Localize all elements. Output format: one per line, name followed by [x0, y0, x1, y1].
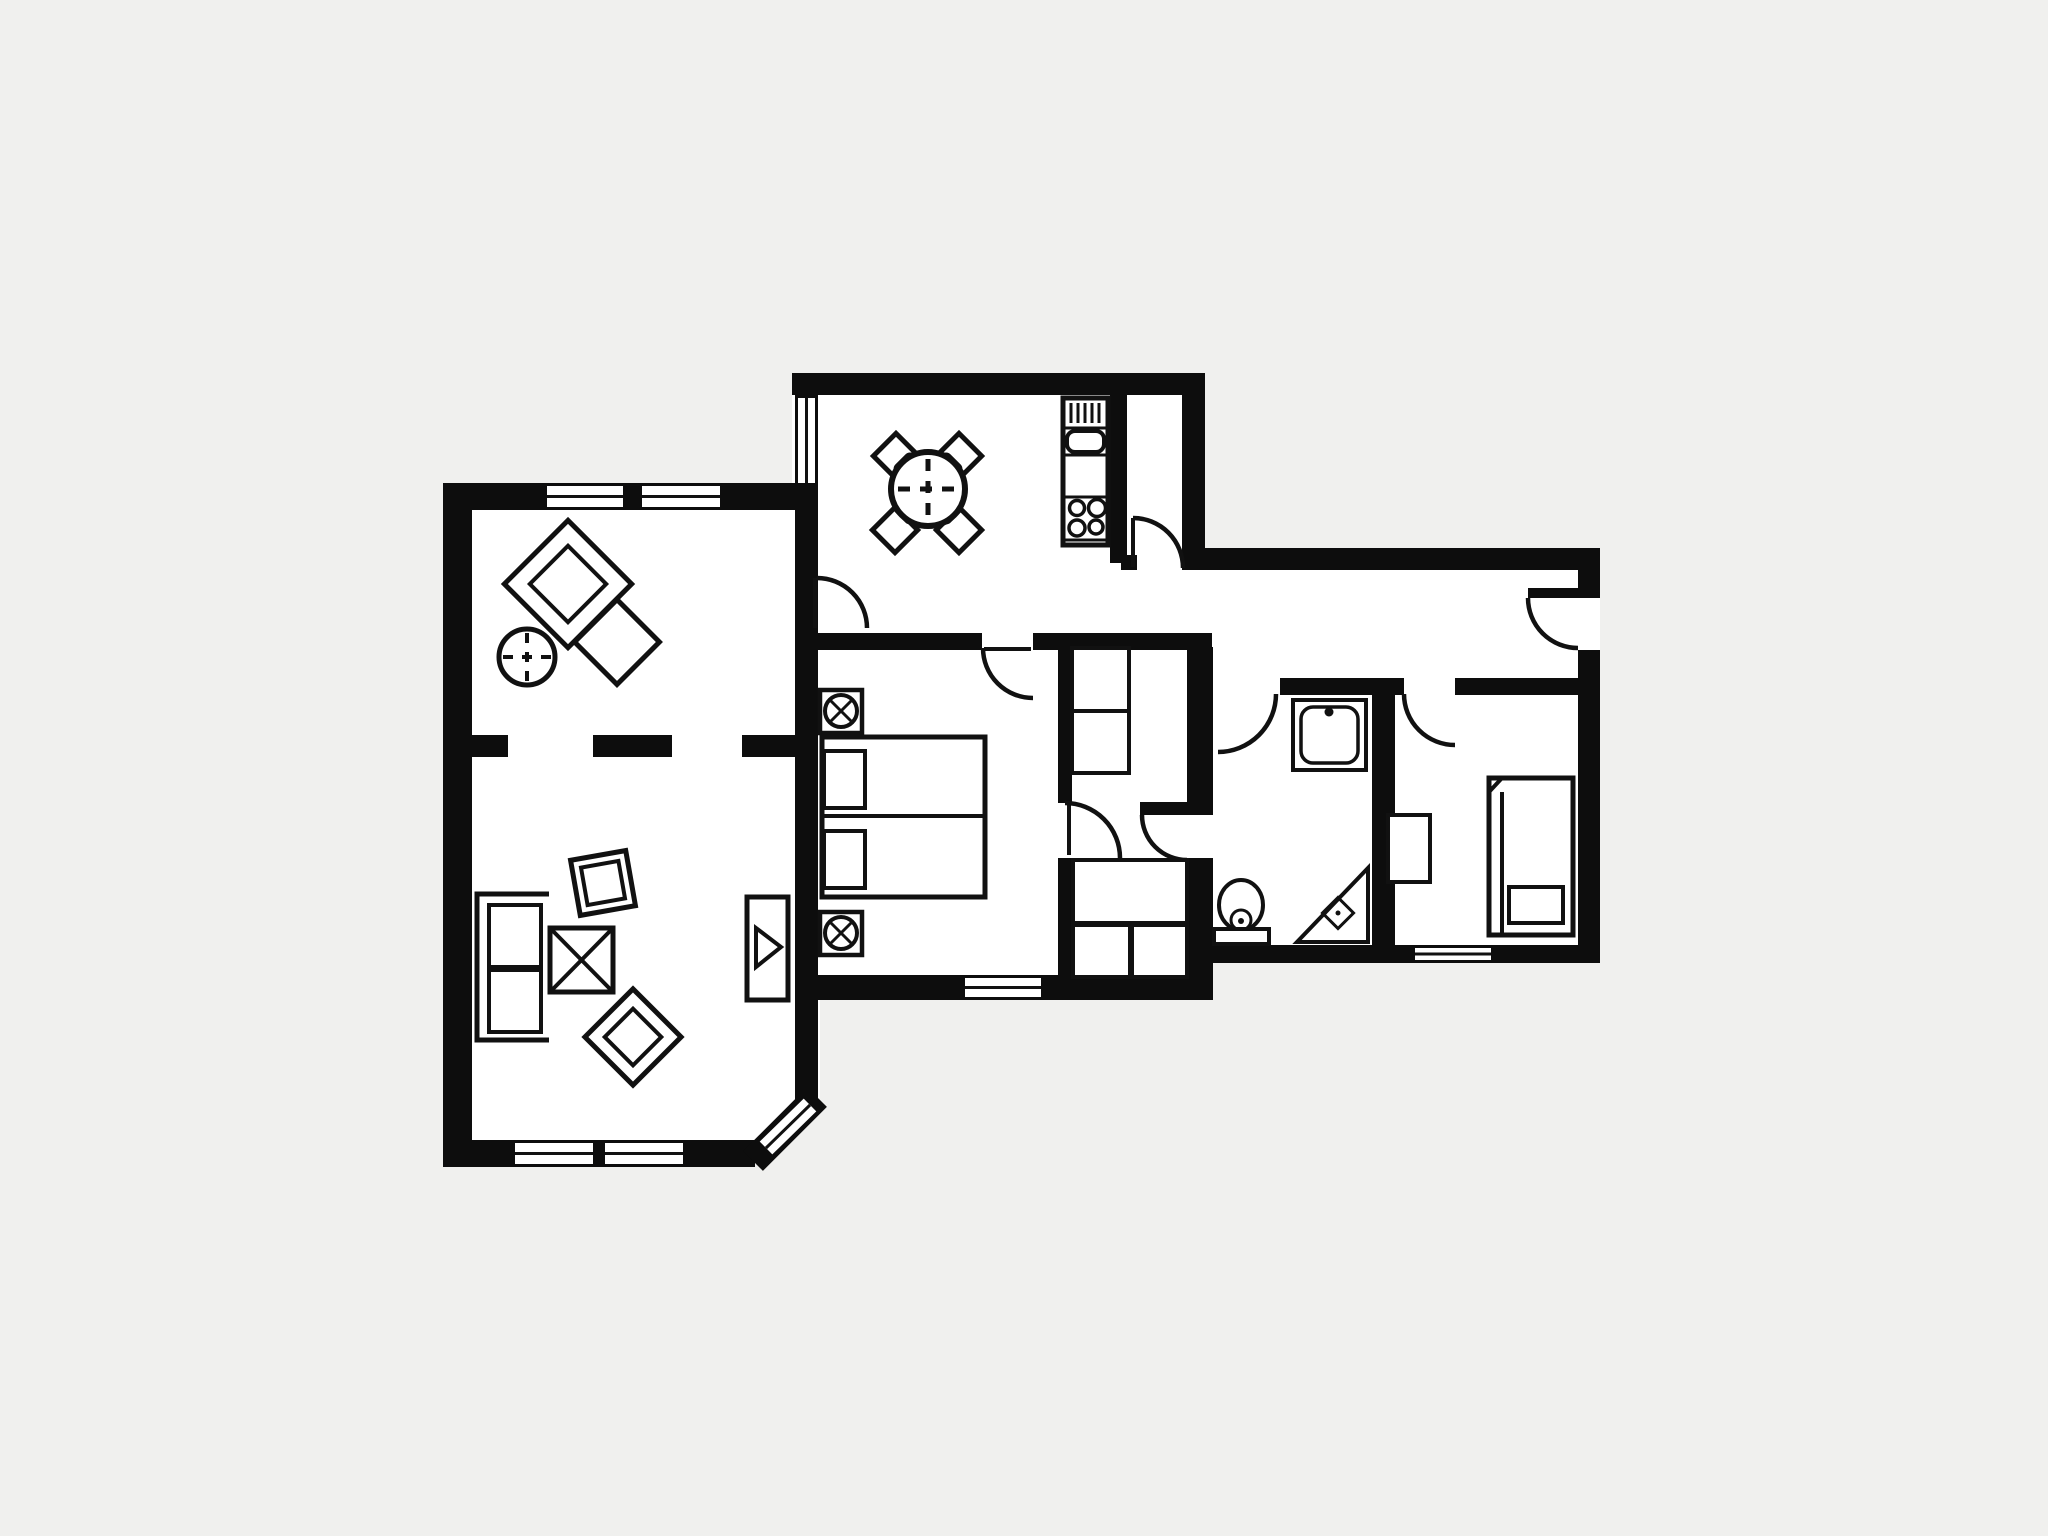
window	[965, 978, 1041, 997]
window	[605, 1143, 683, 1164]
closet-right-wall-upper	[1187, 647, 1213, 802]
double-bed	[822, 737, 985, 897]
side-table	[499, 629, 555, 685]
closet-upper	[1072, 648, 1129, 773]
window	[1415, 948, 1491, 960]
floor-plan-canvas	[0, 0, 2048, 1536]
window	[547, 486, 623, 507]
room-divider-dash	[742, 735, 798, 757]
floor-plan	[0, 0, 2048, 1536]
window	[798, 398, 815, 483]
kitchen-bottom-wall-left	[795, 633, 982, 650]
hall-bottom-wall-left	[1280, 678, 1404, 695]
kitchen-top-wall	[792, 373, 1205, 395]
right-outer-wall-lower	[1578, 650, 1600, 963]
armchair	[571, 851, 636, 916]
sink	[1293, 700, 1366, 770]
kitchen-unit	[1063, 398, 1108, 545]
tv-cabinet	[747, 897, 788, 1000]
sofa	[477, 894, 549, 1040]
nightstand-lamp	[820, 912, 862, 955]
window	[642, 486, 720, 507]
wardrobe	[1388, 815, 1430, 882]
closet-lower	[1073, 860, 1187, 977]
closet-door-lintel	[1140, 802, 1213, 815]
kitchen-right-wall	[1182, 373, 1205, 558]
window	[515, 1143, 593, 1164]
living-bottom-wall	[443, 1140, 755, 1167]
closet-left-wall-lower	[1058, 858, 1072, 975]
toilet	[1214, 880, 1269, 944]
living-left-wall	[443, 483, 472, 1167]
hall-bottom-wall-right	[1455, 678, 1580, 695]
single-bed	[1489, 778, 1573, 935]
hall-top-wall	[1182, 548, 1600, 570]
sink-basin	[1067, 431, 1104, 452]
kitchen-unit-stub-wall	[1110, 393, 1127, 563]
coffee-table	[550, 928, 613, 992]
closet-left-wall-upper	[1058, 647, 1072, 803]
round-table	[891, 452, 965, 526]
room-divider-dash	[593, 735, 672, 757]
room-divider-dash	[447, 735, 508, 757]
right-outer-wall-upper	[1578, 548, 1600, 598]
nightstand-lamp	[820, 690, 862, 733]
south-wall-right	[1200, 945, 1600, 963]
